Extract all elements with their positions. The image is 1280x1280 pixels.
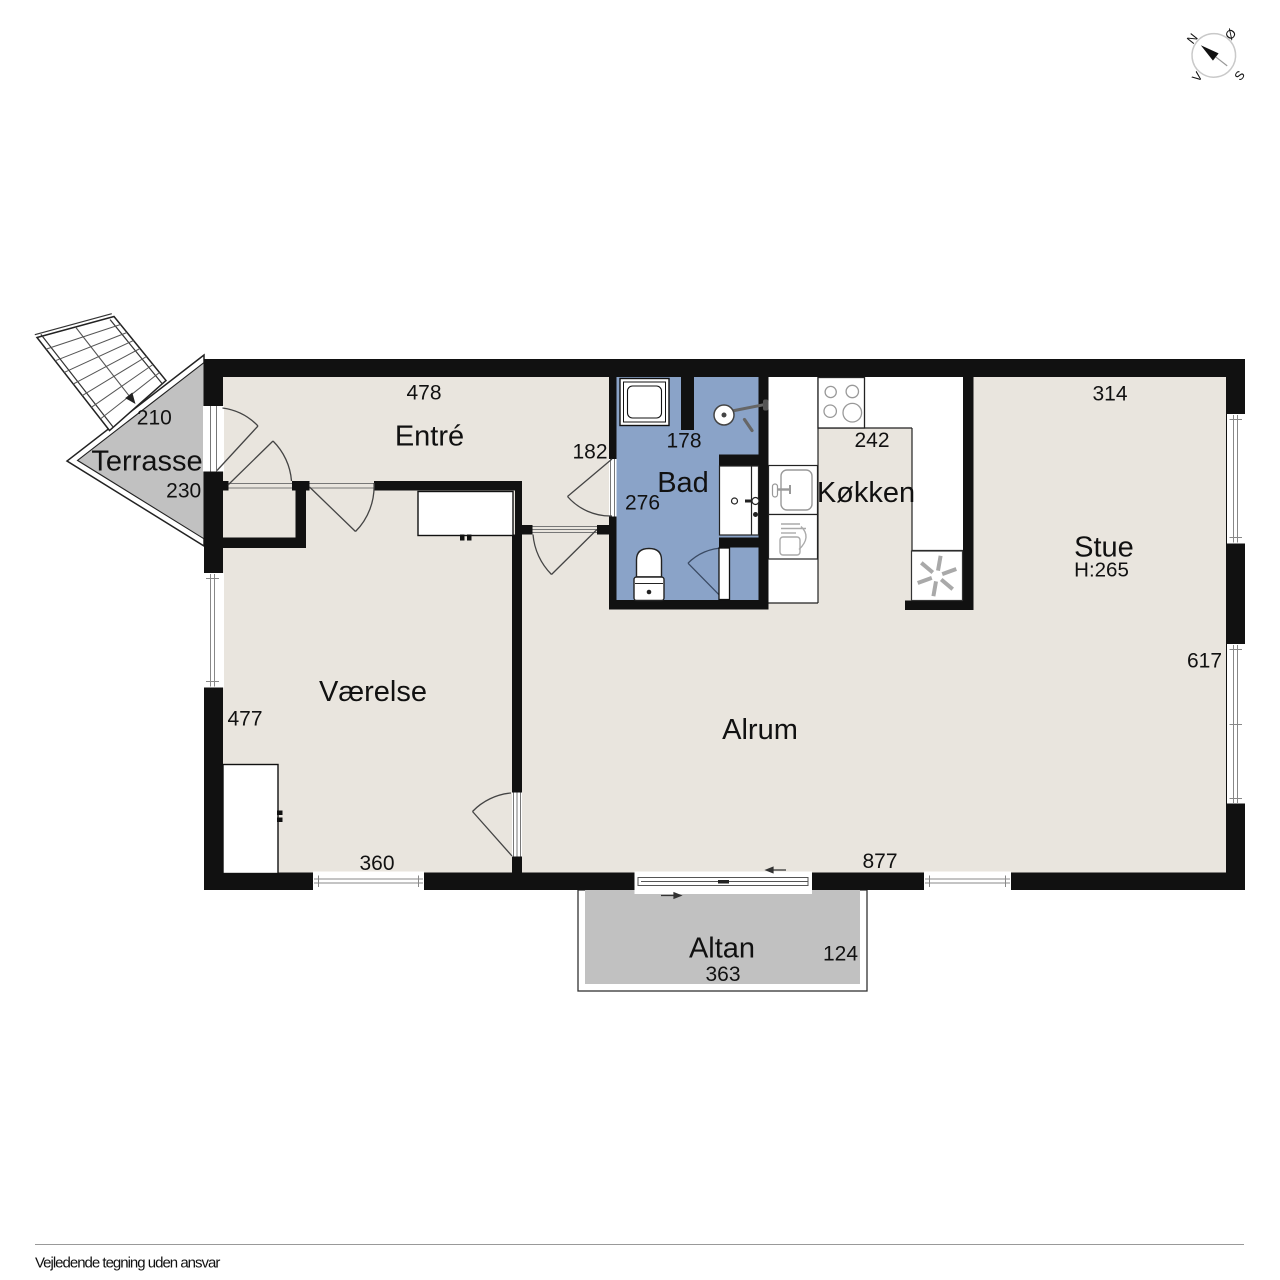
svg-text:Værelse: Værelse <box>319 676 427 708</box>
svg-text:178: 178 <box>666 430 701 453</box>
svg-text:242: 242 <box>854 429 889 452</box>
svg-text:230: 230 <box>166 480 201 503</box>
svg-text:Altan: Altan <box>689 933 755 965</box>
svg-text:Alrum: Alrum <box>722 714 798 746</box>
svg-text:617: 617 <box>1187 650 1222 673</box>
svg-text:276: 276 <box>625 492 660 515</box>
svg-text:478: 478 <box>406 382 441 405</box>
svg-text:360: 360 <box>359 852 394 875</box>
svg-text:182: 182 <box>572 441 607 464</box>
svg-text:314: 314 <box>1092 383 1127 406</box>
svg-text:Terrasse: Terrasse <box>91 446 202 478</box>
svg-text:124: 124 <box>823 943 858 966</box>
svg-text:210: 210 <box>137 407 172 430</box>
svg-text:Bad: Bad <box>657 467 709 499</box>
svg-text:877: 877 <box>862 850 897 873</box>
svg-text:Entré: Entré <box>395 421 464 453</box>
svg-text:Vejledende tegning uden ansvar: Vejledende tegning uden ansvar <box>35 1255 220 1272</box>
svg-text:477: 477 <box>227 708 262 731</box>
svg-text:H:265: H:265 <box>1074 559 1129 582</box>
svg-text:363: 363 <box>705 963 740 986</box>
svg-text:Køkken: Køkken <box>817 477 915 509</box>
